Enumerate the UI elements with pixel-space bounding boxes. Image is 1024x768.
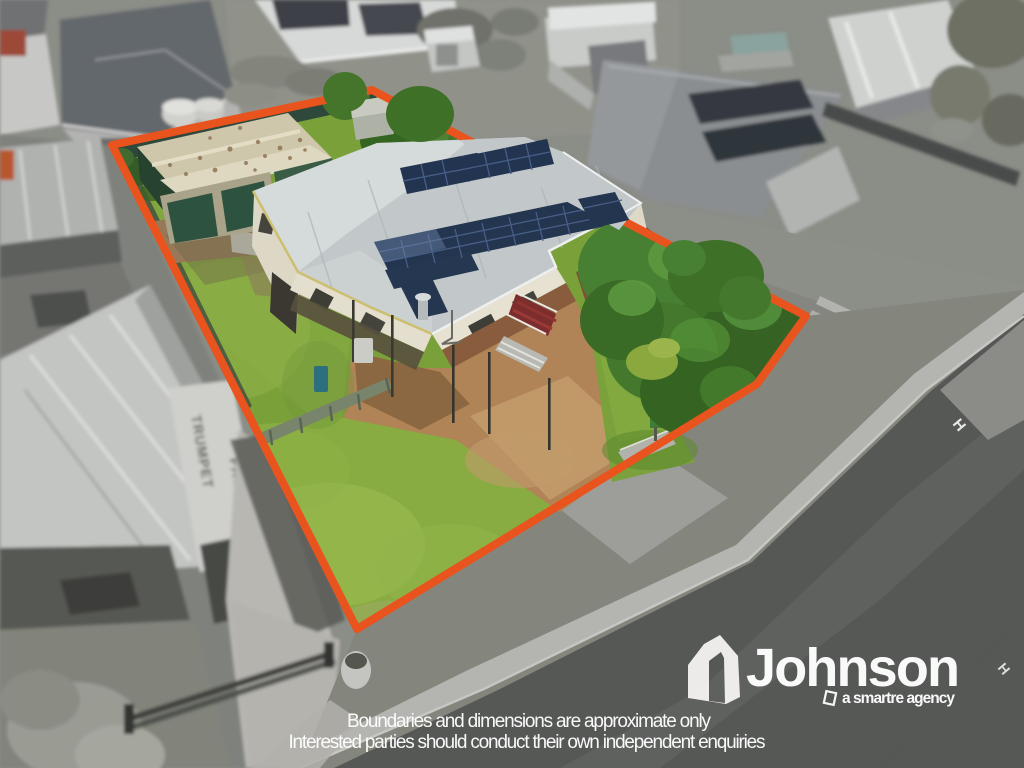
svg-text:Boundaries and dimensions are: Boundaries and dimensions are approximat… — [347, 711, 712, 732]
svg-text:Johnson: Johnson — [746, 638, 960, 698]
svg-text:Interested parties should cond: Interested parties should conduct their … — [289, 732, 766, 753]
svg-text:a smartre agency: a smartre agency — [842, 690, 955, 707]
